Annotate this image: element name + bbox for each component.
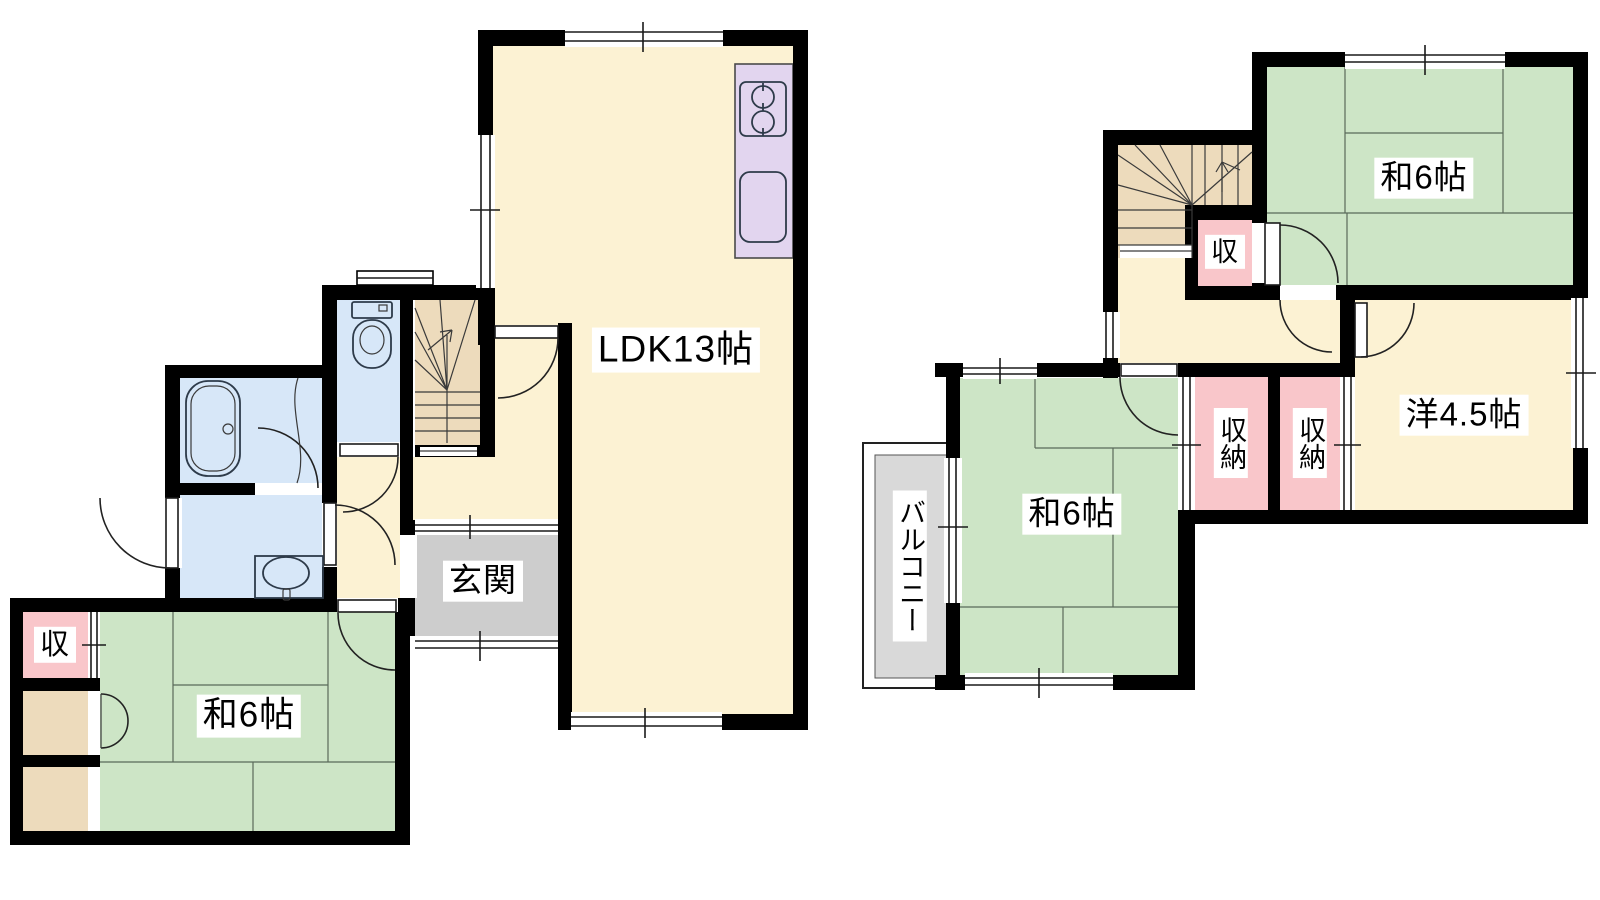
opening-stairs-2f xyxy=(1120,245,1192,258)
room-label-shuno-right: 収納 xyxy=(1293,408,1327,478)
room-label-ldk: LDK13帖 xyxy=(592,328,760,373)
room-label-youshitsu: 洋4.5帖 xyxy=(1400,395,1529,436)
opening-genkan-step xyxy=(400,535,417,598)
floor2-plan xyxy=(863,45,1596,698)
room-label-washitsu-sw: 和6帖 xyxy=(1022,494,1121,535)
room-label-shuno-left: 収納 xyxy=(1214,408,1248,478)
floor1-plan xyxy=(10,22,808,845)
kitchen-counter xyxy=(735,64,793,258)
opening-storage-lower xyxy=(88,767,100,831)
room-washroom xyxy=(180,495,322,598)
room-toilet xyxy=(337,300,400,443)
room-label-washitsu-ne: 和6帖 xyxy=(1374,158,1473,199)
floor-plan-drawing xyxy=(0,0,1600,900)
storage-box-lower xyxy=(23,767,88,831)
room-label-washitsu-1f: 和6帖 xyxy=(197,695,301,738)
window-ldk-bottom xyxy=(571,708,722,738)
room-label-closet-2f: 収 xyxy=(1205,235,1245,269)
room-label-genkan: 玄関 xyxy=(443,561,523,602)
storage-box-upper xyxy=(23,691,88,755)
opening-under-stairs xyxy=(420,447,477,456)
floor-plan-canvas: LDK13帖 玄関 和6帖 収 和6帖 和6帖 洋4.5帖 収納 収納 収 バル… xyxy=(0,0,1600,900)
room-label-balcony: バルコニー xyxy=(893,491,927,642)
window-toilet xyxy=(357,271,433,285)
opening-storage-upper xyxy=(88,691,100,755)
hall-nook xyxy=(413,457,558,523)
room-label-closet-1f: 収 xyxy=(34,627,76,663)
window-hall-2f xyxy=(1101,312,1120,358)
door-washroom-back xyxy=(100,498,182,568)
